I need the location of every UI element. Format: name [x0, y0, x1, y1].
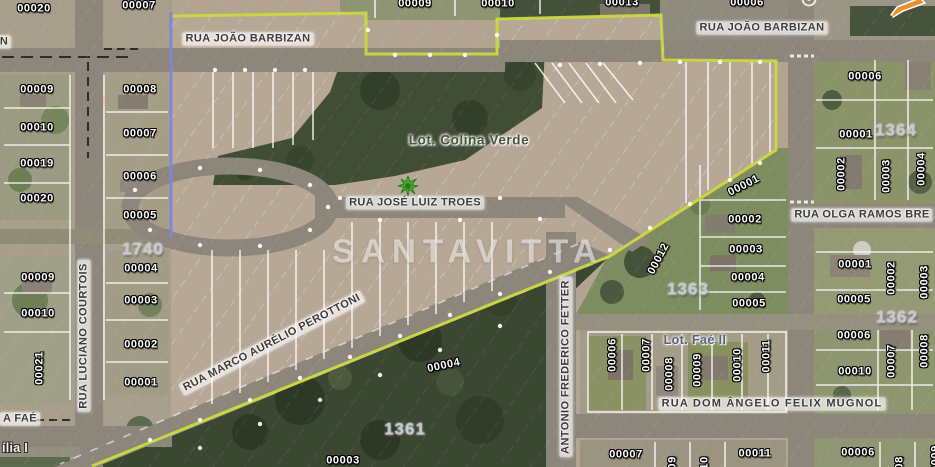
block-label-1363: 1363	[667, 281, 709, 298]
lot-label-00002-w: 00002	[124, 340, 158, 351]
lot-label-00007-1362: 00007	[887, 344, 898, 378]
lotname-label-colina-verde: Lot. Colina Verde	[409, 133, 529, 147]
street-label-rua-dom-angelo-felix-mugnol: RUA DOM ÂNGELO FELIX MUGNOL	[659, 398, 886, 411]
edit-pencil-icon[interactable]	[888, 0, 928, 23]
lot-label-00009-edge: 00009	[931, 445, 935, 467]
block-label-1361: 1361	[384, 421, 426, 438]
street-label-rua-marco-aurelio-perottoni: RUA MARCO AURÉLIO PEROTTONI	[179, 290, 366, 396]
lot-label-00004-w: 00004	[124, 264, 158, 275]
lot-label-00007-w: 00007	[123, 129, 157, 140]
lot-label-00010-s: 00010	[700, 456, 711, 467]
street-label-n-fragment: N	[0, 36, 11, 49]
lot-label-00008-fae: 00008	[665, 357, 676, 391]
lot-label-00012-1363: 00012	[646, 242, 671, 277]
lot-label-00010-w2: 00010	[21, 309, 55, 320]
lot-label-00004-1364: 00004	[917, 152, 928, 186]
lot-label-00002-1363: 00002	[728, 215, 762, 226]
lot-label-00020-w: 00020	[20, 194, 54, 205]
street-label-rua-joao-barbizan-right: RUA JOÃO BARBIZAN	[697, 22, 828, 35]
label-layer: 000200000700009000100001300006RUA JOÃO B…	[0, 0, 935, 467]
lot-label-00010-w1: 00010	[20, 123, 54, 134]
lot-label-00002-1364: 00002	[837, 157, 848, 191]
lot-label-00001-e: 00001	[838, 260, 872, 271]
lot-label-00006-s: 00006	[841, 448, 875, 459]
lot-label-00009-fae: 00009	[693, 353, 704, 387]
lotname-label-fae-ii: Lot. Faé II	[664, 334, 727, 347]
lot-label-00006-1362: 00006	[837, 331, 871, 342]
lot-label-00003-forest: 00003	[326, 456, 360, 467]
lot-label-00006-w: 00006	[123, 172, 157, 183]
lot-label-00008-s: 00008	[895, 456, 906, 467]
lot-label-00021-w: 00021	[35, 351, 46, 385]
lot-label-00008-w: 00008	[123, 85, 157, 96]
lot-label-00009-top: 00009	[398, 0, 432, 10]
lot-label-00003-1364: 00003	[882, 159, 893, 193]
lot-label-00001-1363: 00001	[727, 173, 762, 198]
street-label-antonio-frederico-fetter: ANTONIO FREDERICO FETTER	[560, 277, 573, 457]
lot-label-00008-1362: 00008	[920, 334, 931, 368]
lot-label-00007-s: 00007	[609, 450, 643, 461]
lot-label-00010-fae: 00010	[733, 348, 744, 382]
lot-label-00009-s: 00009	[668, 456, 679, 467]
lot-label-00007-fae: 00007	[642, 338, 653, 372]
lot-label-00005-e: 00005	[837, 295, 871, 306]
tree-marker-icon[interactable]	[398, 176, 418, 201]
lot-label-00010-top: 00010	[481, 0, 515, 10]
lot-label-00005-w: 00005	[123, 211, 157, 222]
lot-label-00009-w2: 00009	[21, 273, 55, 284]
utility-circle-icon	[800, 0, 818, 13]
lot-label-00004-forest: 00004	[426, 357, 461, 375]
map-canvas[interactable]: 000200000700009000100001300006RUA JOÃO B…	[0, 0, 935, 467]
lot-label-00006-top: 00006	[730, 0, 764, 9]
lot-label-00001-w: 00001	[124, 378, 158, 389]
lot-label-00011-s: 00011	[739, 449, 772, 460]
lot-label-00001-1364: 00001	[839, 130, 873, 141]
lot-label-00009-w1: 00009	[20, 85, 54, 96]
street-label-fae-fragment: A FAÉ	[0, 413, 40, 426]
lot-label-00013-top: 00013	[605, 0, 639, 9]
lot-label-00007-top: 00007	[122, 1, 156, 12]
lot-label-00006-fae: 00006	[608, 338, 619, 372]
street-label-rua-olga-ramos-bre: RUA OLGA RAMOS BRE	[791, 209, 932, 222]
lot-label-00005-1363: 00005	[732, 299, 766, 310]
block-label-1364: 1364	[875, 122, 917, 139]
block-label-1362: 1362	[876, 309, 918, 326]
lot-label-00003-w: 00003	[124, 296, 158, 307]
street-label-rua-luciano-courtois: RUA LUCIANO COURTOIS	[78, 260, 91, 412]
lot-label-00011-fae: 00011	[762, 340, 773, 373]
place-label-ilia-i: ília I	[2, 442, 28, 455]
lot-label-00006-1364: 00006	[848, 72, 882, 83]
lot-label-00004-1363: 00004	[731, 273, 765, 284]
lot-label-00019-w: 00019	[20, 159, 54, 170]
lot-label-00003-e: 00003	[920, 265, 931, 299]
lot-label-00002-e: 00002	[887, 261, 898, 295]
lot-label-00003-1363: 00003	[729, 245, 763, 256]
block-label-1740: 1740	[122, 241, 164, 258]
lot-label-00020-top: 00020	[17, 4, 51, 15]
street-label-rua-joao-barbizan-left: RUA JOÃO BARBIZAN	[183, 33, 314, 46]
lot-label-00010-1362: 00010	[838, 367, 872, 378]
